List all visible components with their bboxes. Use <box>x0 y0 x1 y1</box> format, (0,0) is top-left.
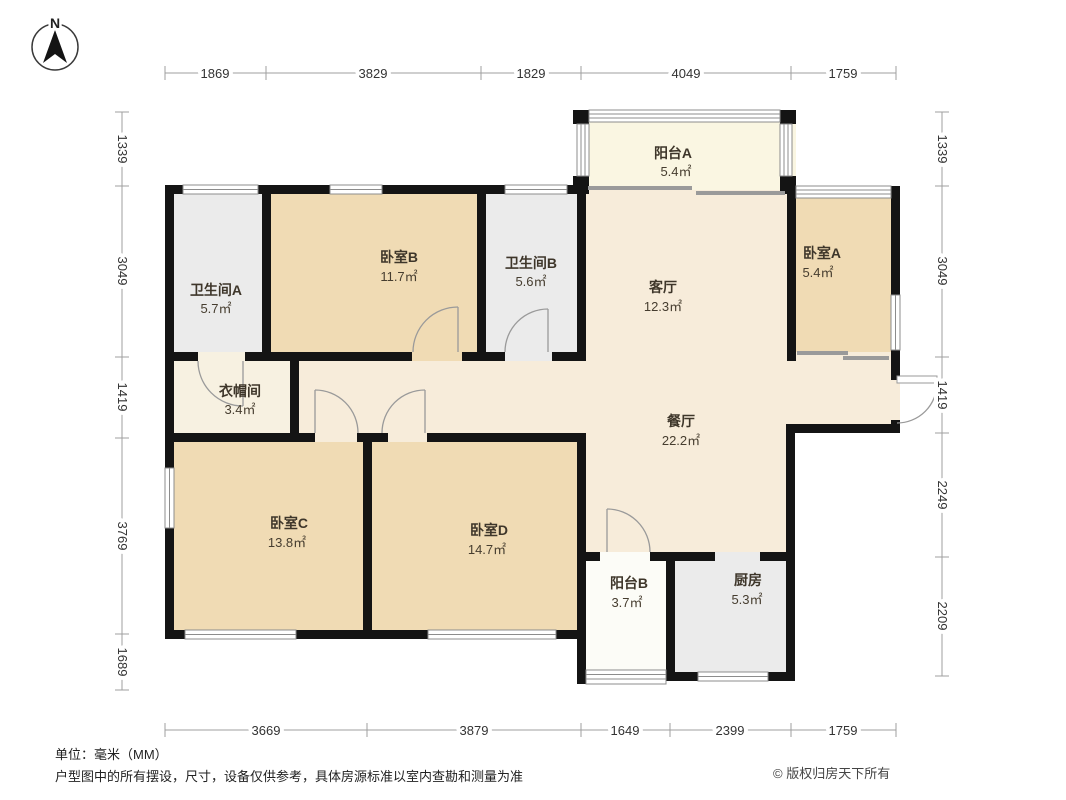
room-label-bath-a: 卫生间A <box>190 282 242 298</box>
room-area-bath-b: 5.6㎡ <box>515 274 546 289</box>
room-area-balcony-a: 5.4㎡ <box>660 164 691 179</box>
room-label-living: 客厅 <box>648 279 677 295</box>
dim-bottom-3: 2399 <box>716 723 745 738</box>
bedroom-b-floor <box>271 194 477 352</box>
balcony-b-railing <box>586 670 666 684</box>
compass-north-arrow-icon <box>43 30 67 63</box>
room-area-kitchen: 5.3㎡ <box>731 592 762 607</box>
copyright-note: © 版权归房天下所有 <box>773 763 890 782</box>
entrance-door <box>897 376 937 423</box>
dim-top-2: 1829 <box>517 66 546 81</box>
window <box>165 468 174 528</box>
room-area-bedroom-d: 14.7㎡ <box>468 542 506 557</box>
dim-left-1: 3049 <box>115 257 130 286</box>
compass-north-label: N <box>50 15 60 31</box>
room-area-balcony-b: 3.7㎡ <box>611 595 642 610</box>
unit-note: 单位：毫米（MM） <box>55 744 523 766</box>
dim-bottom-0: 3669 <box>252 723 281 738</box>
room-area-bedroom-b: 11.7㎡ <box>380 269 417 284</box>
window <box>185 630 296 639</box>
dim-left-2: 1419 <box>115 383 130 412</box>
dim-top-3: 4049 <box>672 66 701 81</box>
window <box>891 295 900 350</box>
room-area-bath-a: 5.7㎡ <box>200 301 231 316</box>
room-label-bedroom-d: 卧室D <box>470 522 508 538</box>
dim-left-4: 1689 <box>115 648 130 677</box>
dim-left-3: 3769 <box>115 522 130 551</box>
bath-a-floor <box>174 194 262 352</box>
window <box>796 186 891 198</box>
dim-left-0: 1339 <box>115 135 130 164</box>
window <box>183 185 258 194</box>
balcony-a-sliding-door <box>588 186 692 190</box>
room-area-living: 12.3㎡ <box>644 299 682 314</box>
room-label-bedroom-b: 卧室B <box>380 249 418 265</box>
room-label-bedroom-c: 卧室C <box>270 515 308 531</box>
dimension-left: 1339 3049 1419 3769 1689 <box>115 112 130 690</box>
balcony-a-sliding-door <box>696 191 785 195</box>
dim-right-1: 3049 <box>935 257 950 286</box>
room-label-kitchen: 厨房 <box>734 572 762 588</box>
dim-top-0: 1869 <box>201 66 230 81</box>
room-area-dining: 22.2㎡ <box>662 433 700 448</box>
room-label-bedroom-a: 卧室A <box>803 245 841 261</box>
window <box>330 185 382 194</box>
room-label-bath-b: 卫生间B <box>505 255 557 271</box>
bedroom-a-sliding-door <box>797 351 848 355</box>
room-area-bedroom-a: 5.4㎡ <box>802 265 833 280</box>
compass: N <box>32 15 78 70</box>
dim-right-2: 1419 <box>935 381 950 410</box>
room-label-balcony-a: 阳台A <box>654 145 692 161</box>
dimension-right: 1339 3049 1419 2249 2209 <box>935 112 950 676</box>
kitchen-floor <box>675 561 786 672</box>
dim-bottom-2: 1649 <box>611 723 640 738</box>
window <box>505 185 567 194</box>
room-label-cloakroom: 衣帽间 <box>219 383 261 399</box>
dim-right-3: 2249 <box>935 481 950 510</box>
bath-b-floor <box>486 194 577 352</box>
room-area-bedroom-c: 13.8㎡ <box>268 535 306 550</box>
dimension-bottom: 3669 3879 1649 2399 1759 <box>165 723 896 738</box>
dim-bottom-1: 3879 <box>460 723 489 738</box>
floorplan-canvas: N <box>0 0 1066 800</box>
disclaimer-note: 户型图中的所有摆设，尺寸，设备仅供参考，具体房源标准以室内查勘和测量为准 <box>55 766 523 788</box>
floorplan-page: N <box>0 0 1066 800</box>
bedroom-a-sliding-door <box>843 356 889 360</box>
room-label-dining: 餐厅 <box>666 413 695 429</box>
dim-bottom-4: 1759 <box>829 723 858 738</box>
window <box>698 672 768 681</box>
dimension-top: 1869 3829 1829 4049 1759 <box>165 66 896 81</box>
room-area-cloakroom: 3.4㎡ <box>224 402 255 417</box>
dim-top-1: 3829 <box>359 66 388 81</box>
footer-notes: 单位：毫米（MM） 户型图中的所有摆设，尺寸，设备仅供参考，具体房源标准以室内查… <box>55 744 523 788</box>
room-label-balcony-b: 阳台B <box>610 575 648 591</box>
window <box>428 630 556 639</box>
dim-right-4: 2209 <box>935 602 950 631</box>
dim-top-4: 1759 <box>829 66 858 81</box>
dim-right-0: 1339 <box>935 135 950 164</box>
